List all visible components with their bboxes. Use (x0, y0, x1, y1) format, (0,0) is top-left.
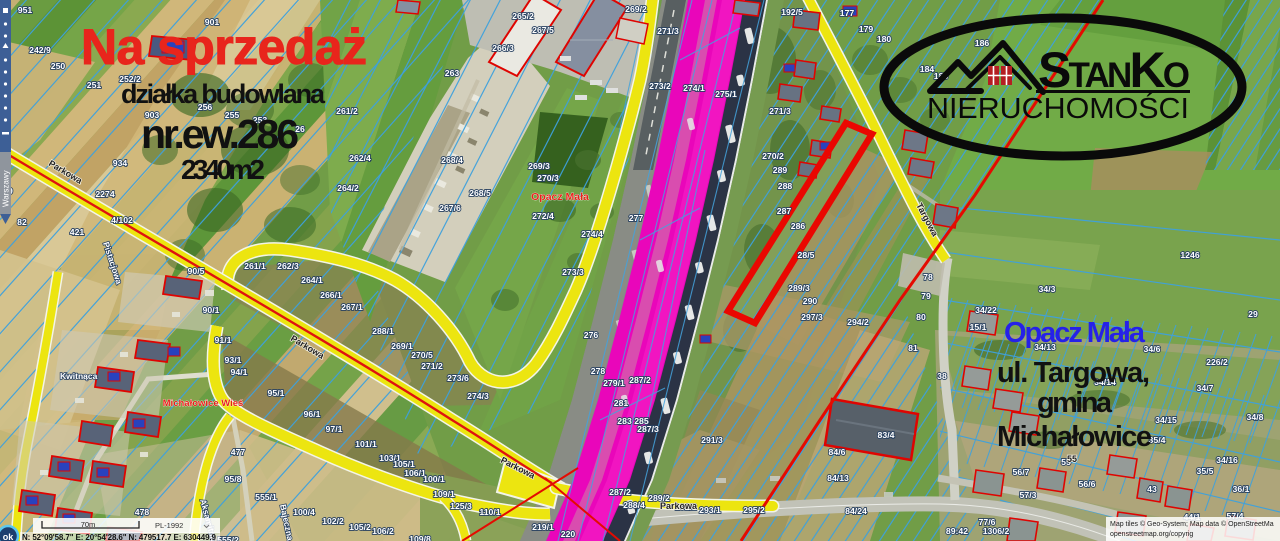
svg-text:34/22: 34/22 (975, 305, 997, 315)
svg-text:109/1: 109/1 (433, 489, 455, 499)
svg-text:56/7: 56/7 (1013, 467, 1030, 477)
svg-text:267/6: 267/6 (439, 203, 461, 213)
svg-text:80: 80 (916, 312, 926, 322)
svg-text:97/1: 97/1 (326, 424, 343, 434)
svg-text:15/1: 15/1 (970, 322, 987, 332)
svg-text:286: 286 (791, 221, 806, 231)
svg-text:274/3: 274/3 (467, 391, 489, 401)
svg-text:106/2: 106/2 (372, 526, 394, 536)
svg-text:34/8: 34/8 (1247, 412, 1264, 422)
svg-text:951: 951 (18, 5, 33, 15)
svg-text:84/24: 84/24 (845, 506, 867, 516)
svg-text:81: 81 (908, 343, 918, 353)
svg-text:184: 184 (920, 64, 935, 74)
svg-text:289: 289 (773, 165, 788, 175)
svg-text:4/102: 4/102 (111, 215, 133, 225)
svg-text:287/3: 287/3 (637, 424, 659, 434)
svg-text:180: 180 (877, 34, 892, 44)
svg-text:78: 78 (923, 272, 933, 282)
svg-text:2340m2: 2340m2 (181, 154, 265, 185)
svg-text:28/5: 28/5 (798, 250, 815, 260)
svg-text:Na sprzedaż: Na sprzedaż (81, 19, 367, 75)
svg-text:273/6: 273/6 (447, 373, 469, 383)
svg-text:96/1: 96/1 (304, 409, 321, 419)
svg-text:Michałowice Wieś: Michałowice Wieś (163, 398, 244, 409)
svg-text:287: 287 (777, 206, 792, 216)
svg-text:95/8: 95/8 (225, 474, 242, 484)
svg-text:226/2: 226/2 (1206, 357, 1228, 367)
svg-text:272/4: 272/4 (532, 211, 554, 221)
svg-text:250: 250 (51, 61, 66, 71)
svg-text:220: 220 (561, 529, 576, 539)
svg-text:125/3: 125/3 (450, 501, 472, 511)
svg-text:2274: 2274 (95, 189, 114, 199)
svg-text:56/6: 56/6 (1079, 479, 1096, 489)
svg-text:263: 263 (445, 68, 460, 78)
svg-text:34/6: 34/6 (1144, 344, 1161, 354)
svg-text:N: 52°09'58.7" E: 20°54'28.6": N: 52°09'58.7" E: 20°54'28.6" N: 479517.… (22, 533, 217, 541)
svg-text:268/4: 268/4 (441, 155, 463, 165)
svg-text:269/1: 269/1 (391, 341, 413, 351)
svg-text:82: 82 (17, 217, 27, 227)
svg-text:267/1: 267/1 (341, 302, 363, 312)
svg-text:287/2: 287/2 (629, 375, 651, 385)
svg-text:555/2: 555/2 (217, 535, 239, 541)
svg-text:271/3: 271/3 (657, 26, 679, 36)
svg-text:266/3: 266/3 (492, 43, 514, 53)
svg-text:84/6: 84/6 (829, 447, 846, 457)
svg-text:421: 421 (70, 227, 85, 237)
svg-text:262/3: 262/3 (277, 261, 299, 271)
svg-text:293/1: 293/1 (699, 505, 721, 515)
svg-text:267/5: 267/5 (532, 25, 554, 35)
svg-text:290: 290 (803, 296, 818, 306)
svg-text:934: 934 (113, 158, 128, 168)
svg-text:29: 29 (1248, 309, 1258, 319)
svg-text:90/5: 90/5 (188, 266, 205, 276)
svg-text:nr.ew.286: nr.ew.286 (141, 111, 299, 157)
svg-text:Warszawy: Warszawy (2, 170, 11, 207)
svg-text:262/4: 262/4 (349, 153, 371, 163)
svg-text:Opacz Mała: Opacz Mała (531, 191, 589, 203)
svg-text:105/2: 105/2 (349, 522, 371, 532)
svg-text:89:42: 89:42 (946, 526, 968, 536)
svg-text:297/3: 297/3 (801, 312, 823, 322)
svg-text:1306/2: 1306/2 (983, 526, 1010, 536)
svg-text:NIERUCHOMOŚCI: NIERUCHOMOŚCI (927, 92, 1189, 125)
svg-text:34/16: 34/16 (1216, 455, 1238, 465)
svg-text:openstreetmap.org/copyrig: openstreetmap.org/copyrig (1110, 531, 1193, 538)
svg-text:Parkowa: Parkowa (660, 501, 698, 511)
svg-text:55: 55 (1067, 454, 1077, 464)
svg-text:PL-1992: PL-1992 (155, 521, 183, 530)
svg-text:251: 251 (87, 80, 102, 90)
svg-text:271/3: 271/3 (769, 106, 791, 116)
svg-text:gmina: gmina (1037, 387, 1113, 419)
svg-text:287/2: 287/2 (609, 487, 631, 497)
svg-text:100/1: 100/1 (423, 474, 445, 484)
svg-text:478: 478 (135, 507, 150, 517)
svg-text:177: 177 (840, 8, 855, 18)
svg-text:266/1: 266/1 (320, 290, 342, 300)
svg-text:242/9: 242/9 (29, 45, 51, 55)
svg-text:83/4: 83/4 (878, 430, 895, 440)
svg-text:269/2: 269/2 (625, 4, 647, 14)
svg-text:274/4: 274/4 (581, 229, 603, 239)
svg-text:277: 277 (629, 213, 644, 223)
svg-text:289/3: 289/3 (788, 283, 810, 293)
svg-text:Map tiles © Geo-System; Map da: Map tiles © Geo-System; Map data © OpenS… (1110, 520, 1274, 528)
svg-text:219/1: 219/1 (532, 522, 554, 532)
svg-text:34/3: 34/3 (1039, 284, 1056, 294)
svg-text:265/2: 265/2 (512, 11, 534, 21)
svg-text:269/3: 269/3 (528, 161, 550, 171)
svg-text:264/1: 264/1 (301, 275, 323, 285)
svg-text:268/5: 268/5 (469, 188, 491, 198)
svg-text:110/1: 110/1 (479, 507, 500, 517)
svg-text:555/1: 555/1 (255, 492, 277, 502)
svg-text:Kwitnąca: Kwitnąca (60, 371, 98, 381)
svg-text:ul. Targowa,: ul. Targowa, (997, 357, 1150, 389)
svg-text:Michałowice: Michałowice (997, 421, 1152, 453)
svg-text:działka budowlana: działka budowlana (121, 79, 326, 109)
svg-text:84/13: 84/13 (827, 473, 849, 483)
svg-text:192/5: 192/5 (781, 7, 803, 17)
svg-text:34/15: 34/15 (1155, 415, 1177, 425)
svg-text:264/2: 264/2 (337, 183, 359, 193)
svg-text:279/1: 279/1 (603, 378, 625, 388)
svg-text:288/1: 288/1 (372, 326, 394, 336)
svg-text:270/2: 270/2 (762, 151, 784, 161)
svg-text:70m: 70m (81, 520, 96, 529)
svg-text:91/1: 91/1 (215, 335, 232, 345)
svg-text:294/2: 294/2 (847, 317, 869, 327)
svg-text:186: 186 (975, 38, 990, 48)
svg-text:273/3: 273/3 (562, 267, 584, 277)
svg-text:93/1: 93/1 (225, 355, 242, 365)
svg-text:477: 477 (231, 447, 246, 457)
svg-text:34/7: 34/7 (1197, 383, 1214, 393)
svg-text:101/1: 101/1 (355, 439, 377, 449)
svg-text:270/3: 270/3 (537, 173, 559, 183)
svg-text:261/1: 261/1 (244, 261, 266, 271)
svg-text:281: 281 (614, 398, 629, 408)
svg-text:295/2: 295/2 (743, 505, 765, 515)
svg-text:ok: ok (3, 532, 14, 541)
svg-text:38: 38 (937, 371, 947, 381)
svg-text:100/4: 100/4 (293, 507, 315, 517)
svg-text:57/3: 57/3 (1020, 490, 1037, 500)
svg-text:179: 179 (859, 24, 874, 34)
svg-text:43: 43 (1147, 484, 1157, 494)
svg-text:278: 278 (591, 366, 606, 376)
svg-text:271/2: 271/2 (421, 361, 443, 371)
svg-text:79: 79 (921, 291, 931, 301)
svg-text:261/2: 261/2 (336, 106, 358, 116)
svg-text:274/1: 274/1 (683, 83, 705, 93)
svg-text:276: 276 (584, 330, 599, 340)
svg-text:109/8: 109/8 (409, 534, 431, 541)
svg-text:94/1: 94/1 (231, 367, 248, 377)
svg-text:1246: 1246 (1180, 250, 1199, 260)
svg-text:95/1: 95/1 (268, 388, 285, 398)
svg-text:291/3: 291/3 (701, 435, 723, 445)
svg-text:35/5: 35/5 (1197, 466, 1214, 476)
svg-text:288: 288 (778, 181, 793, 191)
svg-text:Opacz Mała: Opacz Mała (1004, 317, 1146, 349)
svg-text:270/5: 270/5 (411, 350, 433, 360)
svg-text:102/2: 102/2 (322, 516, 344, 526)
svg-text:288/4: 288/4 (623, 500, 645, 510)
svg-text:36/1: 36/1 (1233, 484, 1250, 494)
svg-text:90/1: 90/1 (203, 305, 220, 315)
svg-text:273/2: 273/2 (649, 81, 671, 91)
svg-text:275/1: 275/1 (715, 89, 737, 99)
